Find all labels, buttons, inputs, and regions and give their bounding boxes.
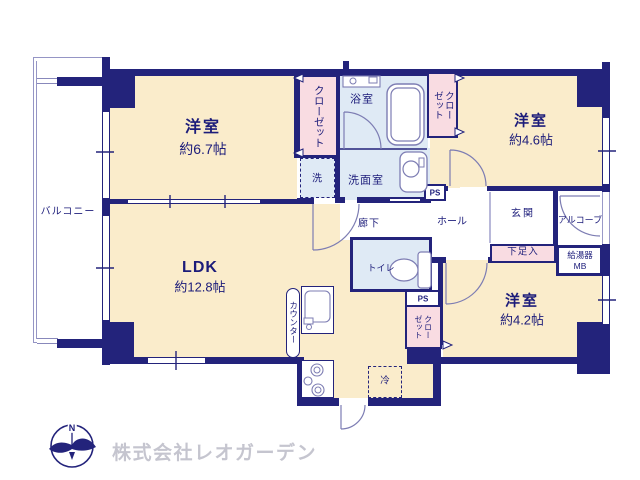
label-ldk-size: 約12.8帖	[174, 281, 225, 296]
closet1-arrow-bottom	[294, 149, 303, 157]
sink-basin	[305, 291, 330, 322]
label-west3-size: 約4.2帖	[500, 314, 544, 329]
label-west1-size: 約6.7帖	[179, 141, 226, 157]
label-west2-name: 洋室	[514, 112, 548, 129]
label-west1-name: 洋室	[185, 119, 221, 137]
floorplan-canvas: 洋室 約6.7帖 クローゼット 浴室 クローゼット 洋室 約4.6帖 洗 洗面室…	[0, 0, 640, 480]
toilet-tank	[418, 252, 431, 288]
fixtures-layer	[0, 0, 640, 480]
door-kitchen	[341, 405, 365, 429]
label-balcony: バルコニー	[41, 206, 96, 218]
label-ps1: PS	[430, 188, 441, 197]
label-closet1: クローゼット	[312, 76, 324, 156]
label-west3-name: 洋室	[505, 292, 539, 309]
label-alcove: アルコーブ	[558, 215, 602, 225]
compass-tail	[69, 452, 75, 460]
label-toilet: トイレ	[367, 263, 394, 273]
bath-shelf	[343, 76, 380, 87]
company-name: 株式会社レオガーデン	[112, 438, 317, 465]
label-hall: ホール	[437, 216, 467, 228]
closet3-arrow	[443, 341, 452, 349]
label-closet3: クローゼット	[413, 312, 432, 342]
label-water-heater: 給湯器	[567, 251, 593, 261]
label-closet2: クローゼット	[431, 87, 453, 123]
label-ps2: PS	[418, 294, 429, 303]
label-shoe-cabinet: 下足入	[507, 248, 539, 259]
label-west2-size: 約4.6帖	[509, 134, 553, 149]
door-west3	[446, 263, 487, 304]
label-laundry: 洗	[312, 173, 322, 185]
closet2-arrow-top	[455, 74, 464, 82]
door-bath	[344, 112, 381, 149]
closet1-arrow-top	[294, 74, 303, 82]
label-bath: 浴室	[350, 94, 374, 107]
label-counter: カウンター	[288, 291, 297, 353]
label-refrigerator: 冷	[380, 377, 390, 388]
compass-north-label: N	[68, 423, 77, 433]
door-west2	[450, 150, 486, 186]
label-washroom: 洗面室	[348, 175, 384, 188]
stove-burner	[311, 364, 323, 376]
label-meter-box: MB	[574, 262, 587, 272]
door-ldk	[313, 204, 359, 250]
label-corridor: 廊下	[358, 218, 380, 230]
label-ldk-name: LDK	[182, 259, 218, 277]
closet2-arrow-bottom	[455, 128, 464, 136]
bathtub	[387, 84, 424, 145]
label-genkan: 玄関	[511, 208, 535, 220]
